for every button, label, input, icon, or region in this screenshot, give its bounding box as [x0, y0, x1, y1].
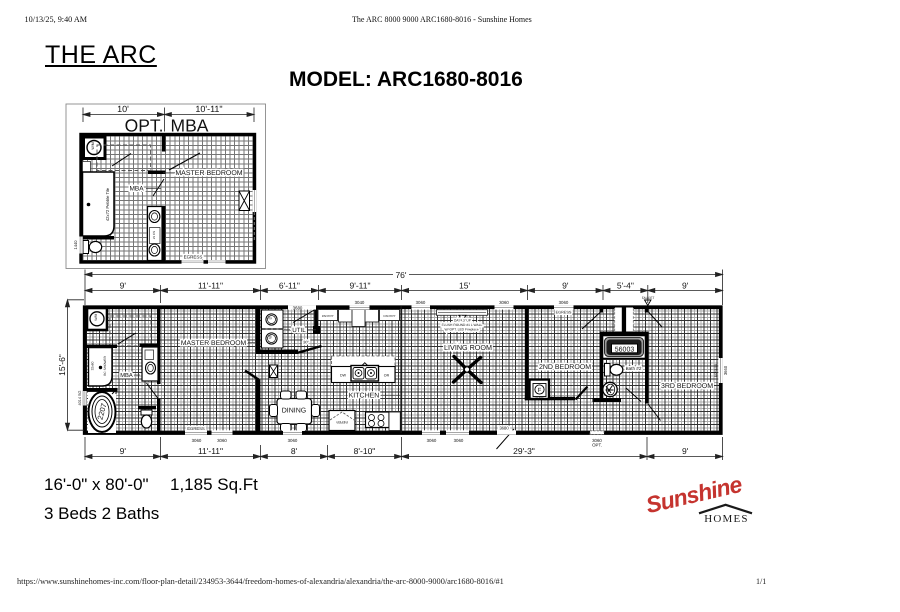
svg-text:11'-11": 11'-11": [198, 280, 223, 290]
svg-text:8'-10": 8'-10": [354, 446, 376, 456]
svg-text:REFER: REFER: [336, 420, 348, 424]
svg-text:OPT.: OPT.: [125, 116, 164, 136]
svg-text:9': 9': [682, 446, 689, 456]
svg-text:EGRESS: EGRESS: [187, 426, 205, 431]
svg-text:56003: 56003: [615, 346, 635, 353]
svg-text:10': 10': [117, 104, 129, 114]
svg-text:OR: OR: [384, 374, 390, 378]
svg-text:HOMES: HOMES: [704, 513, 749, 525]
svg-text:3060: 3060: [559, 300, 569, 305]
svg-text:9': 9': [120, 446, 127, 456]
svg-text:10'-11": 10'-11": [195, 104, 222, 114]
svg-text:F: F: [538, 387, 542, 394]
svg-text:FURN: FURN: [536, 395, 544, 399]
svg-text:3060: 3060: [427, 438, 437, 443]
svg-text:RC SHOWER: RC SHOWER: [103, 355, 107, 376]
svg-text:KITCHEN: KITCHEN: [349, 393, 380, 400]
svg-text:15'-6": 15'-6": [57, 354, 67, 376]
svg-text:3680: 3680: [499, 426, 509, 431]
svg-text:EGRESS: EGRESS: [556, 311, 572, 315]
svg-text:MBA: MBA: [171, 116, 209, 136]
svg-text:3060: 3060: [416, 300, 426, 305]
svg-text:3040: 3040: [355, 300, 365, 305]
svg-text:9': 9': [562, 280, 569, 290]
svg-text:EGRESS: EGRESS: [184, 255, 203, 260]
svg-text:MASTER BEDROOM: MASTER BEDROOM: [181, 340, 247, 347]
svg-text:30": 30": [303, 340, 309, 345]
svg-text:EGRESS: EGRESS: [713, 364, 717, 377]
svg-text:PANTRY: PANTRY: [322, 314, 334, 318]
svg-text:8': 8': [291, 446, 298, 456]
svg-text:UTIL: UTIL: [292, 327, 306, 334]
svg-text:3060: 3060: [217, 438, 227, 443]
svg-text:5'-4": 5'-4": [617, 280, 634, 290]
svg-text:#1 CS: #1 CS: [152, 231, 156, 239]
svg-text:MASTER BEDROOM: MASTER BEDROOM: [175, 170, 242, 177]
svg-text:MBA: MBA: [120, 373, 133, 379]
svg-text:9': 9': [120, 280, 127, 290]
svg-text:2ND BEDROOM: 2ND BEDROOM: [539, 364, 591, 371]
svg-text:MBA: MBA: [129, 186, 144, 193]
svg-text:DATA 3' UP: DATA 3' UP: [454, 319, 472, 323]
svg-text:3680: 3680: [293, 305, 303, 310]
svg-text:LIVING ROOM: LIVING ROOM: [444, 343, 492, 352]
svg-text:29'-3": 29'-3": [513, 446, 535, 456]
svg-text:DINING: DINING: [282, 408, 307, 415]
svg-text:W: W: [268, 335, 273, 339]
svg-text:1440: 1440: [73, 240, 78, 250]
svg-text:4014 SG: 4014 SG: [78, 390, 82, 405]
svg-text:9'-11": 9'-11": [349, 280, 370, 290]
svg-text:42x72 Pebble Tile: 42x72 Pebble Tile: [105, 187, 110, 221]
svg-text:Bath #2: Bath #2: [626, 366, 642, 371]
svg-text:3060: 3060: [288, 438, 298, 443]
svg-text:D: D: [268, 316, 273, 319]
svg-text:W/M: W/M: [94, 314, 98, 321]
svg-text:3060: 3060: [192, 438, 202, 443]
svg-text:3060: 3060: [499, 300, 509, 305]
svg-text:Sunshine: Sunshine: [643, 471, 744, 518]
svg-text:W/M: W/M: [91, 142, 95, 149]
svg-text:3060: 3060: [454, 438, 464, 443]
svg-text:11'-11": 11'-11": [198, 446, 223, 456]
svg-text:W/ OPT. LED Fireplace: W/ OPT. LED Fireplace: [444, 327, 478, 331]
svg-text:PANTRY: PANTRY: [384, 314, 396, 318]
svg-text:76': 76': [395, 270, 406, 280]
svg-text:OPT.: OPT.: [592, 443, 602, 448]
svg-text:3RD BEDROOM: 3RD BEDROOM: [661, 383, 713, 390]
svg-text:DW: DW: [340, 374, 347, 378]
svg-text:32x60: 32x60: [91, 361, 95, 370]
svg-text:3660: 3660: [723, 365, 728, 375]
svg-text:15': 15': [459, 280, 470, 290]
svg-text:6'-11": 6'-11": [279, 280, 300, 290]
svg-text:9': 9': [682, 280, 689, 290]
